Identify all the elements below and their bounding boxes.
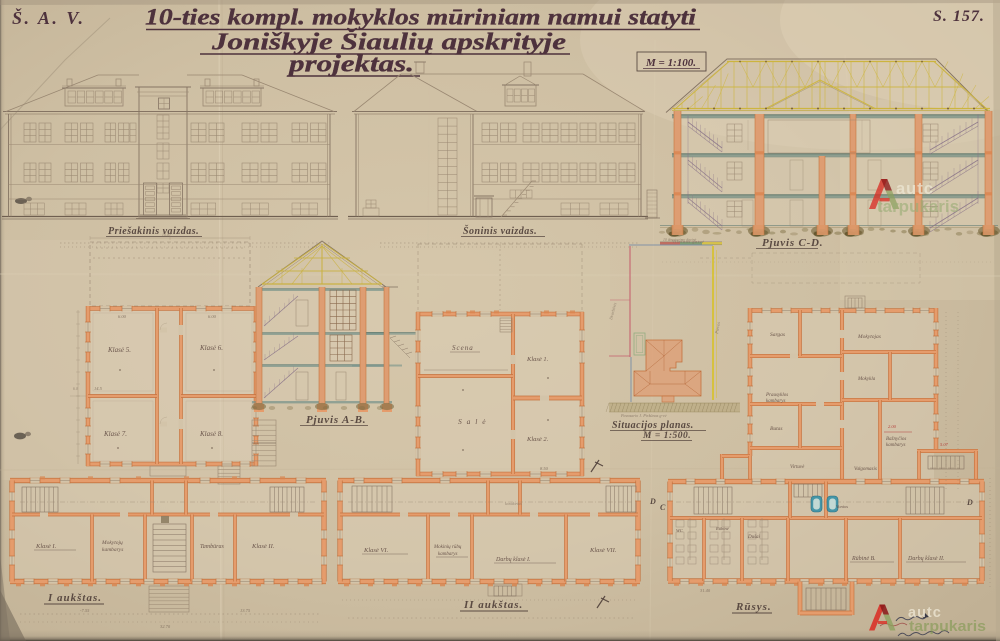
svg-text:14.5: 14.5 xyxy=(94,386,103,391)
svg-text:tarpukaris: tarpukaris xyxy=(909,618,986,635)
svg-text:Valgomasis: Valgomasis xyxy=(854,467,877,472)
svg-text:Darbų klasė I.: Darbų klasė I. xyxy=(495,557,531,563)
svg-text:Klasė VI.: Klasė VI. xyxy=(363,547,389,554)
svg-text:M = 1:500.: M = 1:500. xyxy=(642,431,691,441)
svg-text:Rūbinė B.: Rūbinė B. xyxy=(851,556,876,562)
svg-text:Šoninis vaizdas.: Šoninis vaizdas. xyxy=(463,224,537,237)
svg-text:32.70: 32.70 xyxy=(160,624,171,629)
svg-text:Klasė I.: Klasė I. xyxy=(35,543,57,550)
svg-text:WC: WC xyxy=(676,528,684,533)
svg-text:8.50: 8.50 xyxy=(540,466,549,471)
svg-text:Mokytojas: Mokytojas xyxy=(857,334,881,340)
svg-text:Mokytojų: Mokytojų xyxy=(101,540,123,546)
svg-text:Situacijos planas.: Situacijos planas. xyxy=(612,420,694,431)
svg-text:II aukštas.: II aukštas. xyxy=(463,599,523,611)
svg-text:Darbų klasė II.: Darbų klasė II. xyxy=(907,556,945,562)
svg-text:Klasė 6.: Klasė 6. xyxy=(199,344,223,352)
svg-text:14.40: 14.40 xyxy=(162,233,171,237)
svg-text:Tambūras: Tambūras xyxy=(200,544,224,550)
svg-text:Klasė 8.: Klasė 8. xyxy=(199,430,223,438)
svg-text:koridorius: koridorius xyxy=(505,501,522,506)
svg-text:Vonios: Vonios xyxy=(836,504,848,509)
svg-text:Š. A. V.: Š. A. V. xyxy=(12,7,86,28)
svg-text:D: D xyxy=(966,498,973,507)
svg-text:S. 157.: S. 157. xyxy=(933,8,985,25)
svg-text:kambarys: kambarys xyxy=(102,547,123,553)
svg-text:Sargas: Sargas xyxy=(770,332,785,338)
svg-text:Mokinių rūbų: Mokinių rūbų xyxy=(433,545,462,550)
svg-text:31.40: 31.40 xyxy=(700,588,711,593)
svg-text:kambarys: kambarys xyxy=(438,552,457,557)
svg-text:Pjuvis A-B.: Pjuvis A-B. xyxy=(306,414,366,426)
svg-text:Klasė 1.: Klasė 1. xyxy=(526,356,549,363)
svg-text:6.0: 6.0 xyxy=(73,387,78,391)
svg-text:10-ties kompl. mokyklos mūrini: 10-ties kompl. mokyklos mūriniam namui s… xyxy=(145,5,697,30)
svg-text:Rūsys.: Rūsys. xyxy=(735,601,772,613)
svg-text:C: C xyxy=(660,503,666,512)
svg-text:D: D xyxy=(649,497,656,506)
svg-text:Dušai: Dušai xyxy=(747,535,761,540)
svg-text:Virtuvė: Virtuvė xyxy=(790,465,805,470)
svg-text:projektas.: projektas. xyxy=(286,52,414,78)
svg-text:5.07: 5.07 xyxy=(940,442,949,447)
svg-text:Mokykla: Mokykla xyxy=(857,377,876,382)
svg-text:6.00: 6.00 xyxy=(208,314,217,319)
svg-text:Pavasario J. Pirkūnas g-vė: Pavasario J. Pirkūnas g-vė xyxy=(620,413,667,418)
svg-text:M = 1:100.: M = 1:100. xyxy=(645,57,696,69)
svg-text:13.75: 13.75 xyxy=(240,608,251,613)
svg-text:I aukštas.: I aukštas. xyxy=(47,592,102,604)
svg-text:tarpukaris: tarpukaris xyxy=(877,197,959,216)
svg-text:Vilniaus gatvė: Vilniaus gatvė xyxy=(672,239,705,244)
svg-text:Scena: Scena xyxy=(452,344,474,352)
svg-text:Klasė 7.: Klasė 7. xyxy=(103,430,127,438)
svg-text:autc: autc xyxy=(896,180,934,198)
svg-text:Prausyklos: Prausyklos xyxy=(765,393,788,398)
svg-text:Rūbinė: Rūbinė xyxy=(715,526,729,531)
svg-text:Klasė 2.: Klasė 2. xyxy=(526,436,549,443)
svg-text:kambarys: kambarys xyxy=(886,443,905,448)
svg-text:Klasė 5.: Klasė 5. xyxy=(107,346,131,354)
svg-text:2.00: 2.00 xyxy=(888,424,897,429)
svg-text:-7.55: -7.55 xyxy=(80,608,90,613)
svg-text:Priešakinis vaizdas.: Priešakinis vaizdas. xyxy=(108,226,199,237)
svg-text:S a l ė: S a l ė xyxy=(458,417,487,426)
svg-text:kambarys: kambarys xyxy=(766,399,785,404)
svg-text:Klasė VII.: Klasė VII. xyxy=(589,547,617,554)
svg-text:6.00: 6.00 xyxy=(118,314,127,319)
svg-text:Bažnyčios: Bažnyčios xyxy=(886,437,906,442)
svg-text:Klasė II.: Klasė II. xyxy=(251,543,275,550)
svg-text:Pjuvis C-D.: Pjuvis C-D. xyxy=(762,237,823,249)
svg-text:Butas: Butas xyxy=(770,426,783,432)
